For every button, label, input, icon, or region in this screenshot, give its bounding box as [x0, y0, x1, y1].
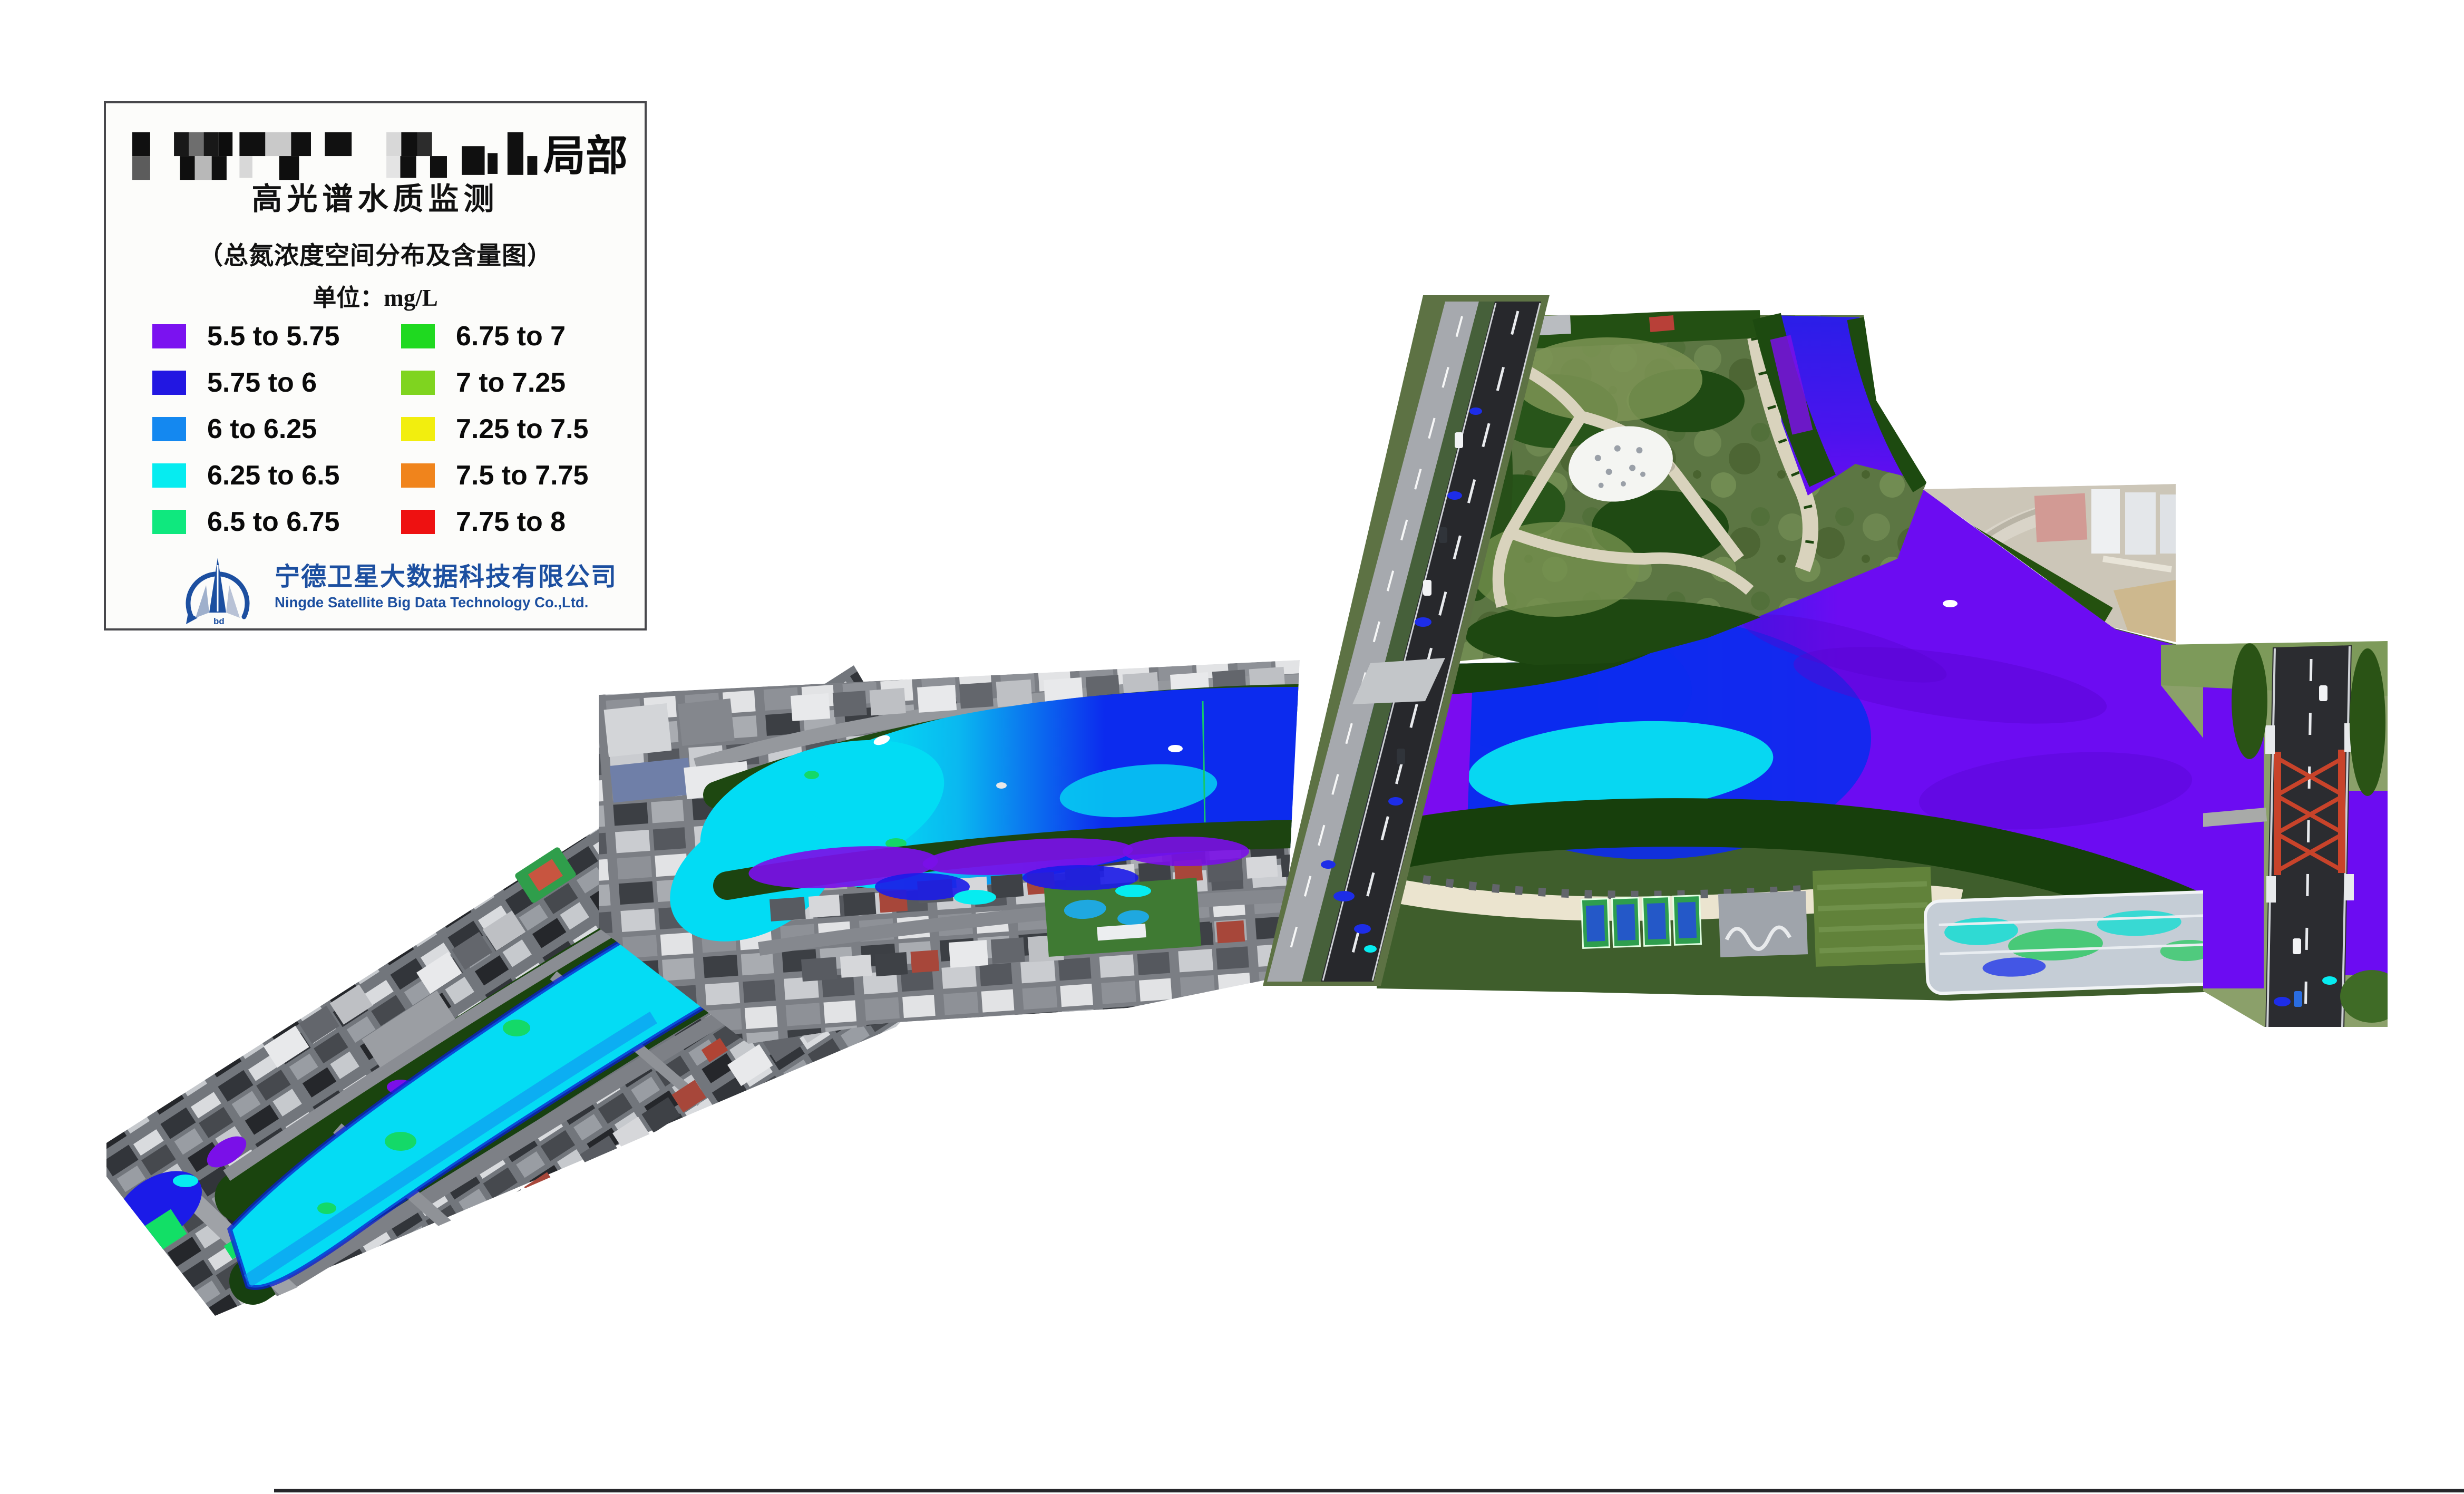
legend-class-label: 5.75 to 6 [207, 367, 317, 399]
legend-class-label: 6.75 to 7 [456, 321, 566, 352]
legend-class-label: 7.25 to 7.5 [456, 413, 588, 445]
legend-class-row: 7.75 to 8 [401, 499, 588, 545]
legend-class-row: 6.5 to 6.75 [152, 499, 339, 545]
legend-title: 高光谱水质监测 [106, 174, 645, 218]
legend-color-swatch [401, 417, 435, 441]
legend-class-label: 6 to 6.25 [207, 413, 317, 445]
tileA-buildings [1872, 337, 1913, 391]
bottom-border-line [274, 1489, 2464, 1492]
legend-class-label: 6.25 to 6.5 [207, 460, 339, 491]
legend-color-swatch [152, 371, 186, 395]
legend-class-row: 6 to 6.25 [152, 406, 339, 452]
company-block: bd 宁德卫星大数据科技有限公司 Ningde Satellite Big Da… [106, 556, 645, 630]
legend-class-row: 7 to 7.25 [401, 360, 588, 406]
legend-color-swatch [152, 463, 186, 488]
legend-class-row: 5.75 to 6 [152, 360, 339, 406]
legend-color-swatch [401, 463, 435, 488]
legend-color-swatch [152, 417, 186, 441]
svg-text:bd: bd [213, 616, 225, 626]
riverside-building [1925, 891, 2236, 994]
legend-class-row: 5.5 to 5.75 [152, 313, 339, 360]
legend-color-swatch [152, 324, 186, 348]
legend-classes: 5.5 to 5.755.75 to 66 to 6.256.25 to 6.5… [106, 313, 645, 550]
skate-plaza [1718, 891, 1808, 957]
legend-color-swatch [152, 510, 186, 534]
legend-color-swatch [401, 324, 435, 348]
legend-color-swatch [401, 371, 435, 395]
legend-column-2: 6.75 to 77 to 7.257.25 to 7.57.5 to 7.75… [401, 313, 588, 545]
grass-field [1813, 867, 1934, 967]
legend-class-label: 7.5 to 7.75 [456, 460, 588, 491]
company-name-zh: 宁德卫星大数据科技有限公司 [275, 562, 617, 593]
legend-class-label: 7.75 to 8 [456, 506, 566, 538]
company-logo-icon: bd [172, 555, 263, 629]
legend-class-label: 7 to 7.25 [456, 367, 566, 399]
legend-column-1: 5.5 to 5.755.75 to 66 to 6.256.25 to 6.5… [152, 313, 339, 545]
legend-class-label: 5.5 to 5.75 [207, 321, 339, 352]
legend-class-row: 7.25 to 7.5 [401, 406, 588, 452]
legend-color-swatch [401, 510, 435, 534]
legend-unit-label: 单位：mg/L [106, 278, 645, 313]
legend-class-row: 6.75 to 7 [401, 313, 588, 360]
tile-center [599, 660, 1381, 1044]
legend-class-row: 6.25 to 6.5 [152, 452, 339, 499]
page: 局部 高光谱水质监测 （总氮浓度空间分布及含量图） 单位：mg/L 5.5 to… [0, 0, 2464, 1494]
legend-panel: 局部 高光谱水质监测 （总氮浓度空间分布及含量图） 单位：mg/L 5.5 to… [104, 101, 647, 630]
legend-subtitle: （总氮浓度空间分布及含量图） [106, 235, 645, 271]
legend-class-label: 6.5 to 6.75 [207, 506, 339, 538]
company-name-en: Ningde Satellite Big Data Technology Co.… [275, 593, 617, 613]
legend-class-row: 7.5 to 7.75 [401, 452, 588, 499]
